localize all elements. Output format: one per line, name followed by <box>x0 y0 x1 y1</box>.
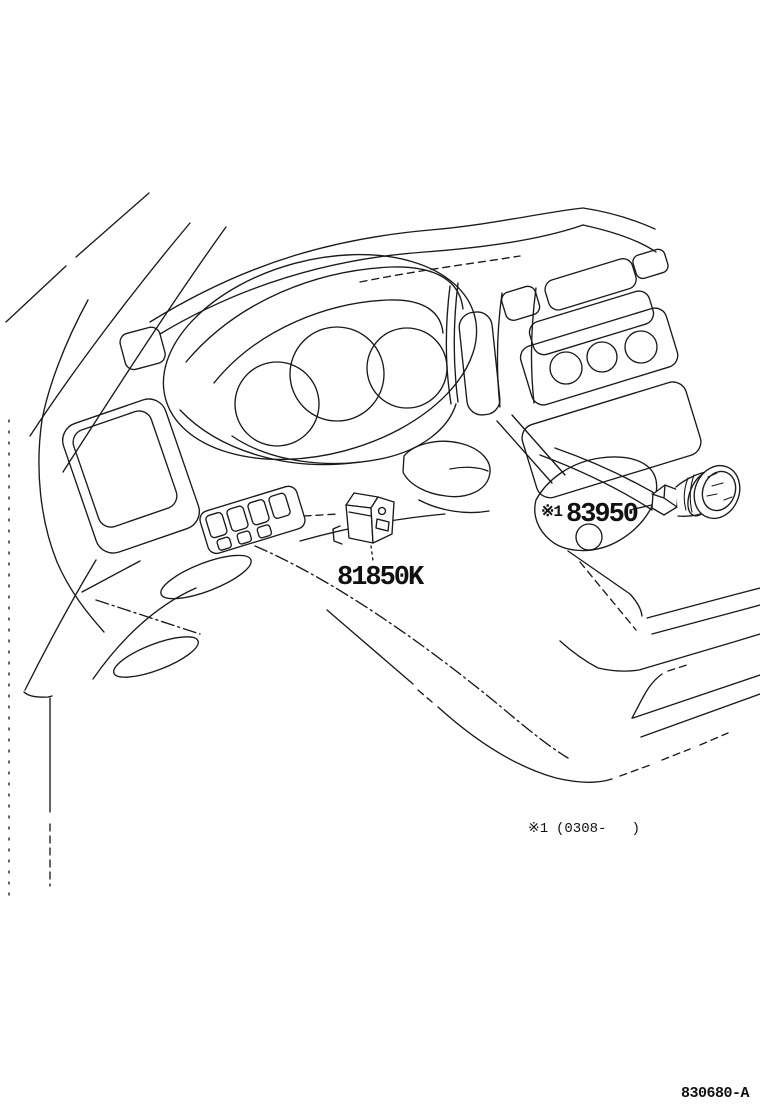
hvac-knob-left <box>550 352 582 384</box>
parts-diagram-page: ※1 83950 81850K ※1 (0308- ) 830680-A <box>0 0 760 1112</box>
steering-column <box>403 415 565 513</box>
figure-code: 830680-A <box>681 1085 750 1102</box>
instrument-panel-diagram: ※1 83950 81850K ※1 (0308- ) 830680-A <box>0 0 760 1112</box>
part-81850k-drawing <box>304 493 394 561</box>
leader-line-81850k <box>304 514 338 516</box>
window-switch-panel <box>198 484 307 556</box>
a-pillar-lines <box>6 193 226 632</box>
cluster-visor <box>186 267 463 463</box>
dash-lower-edge <box>255 448 666 758</box>
footnote-range: (0308- ) <box>556 821 640 837</box>
center-stack <box>500 248 705 502</box>
callout-81850k-number[interactable]: 81850K <box>337 563 425 593</box>
hvac-knob-right <box>625 331 657 363</box>
labels: ※1 83950 81850K ※1 (0308- ) 830680-A <box>337 500 750 1102</box>
callout-83950-number[interactable]: 83950 <box>566 500 638 530</box>
hvac-knob-center <box>587 342 617 372</box>
footnote-marker: ※1 <box>528 821 548 837</box>
dashboard-line-art <box>6 193 760 900</box>
console-sweep <box>327 610 728 782</box>
callout-83950-marker: ※1 <box>541 503 562 521</box>
gauge-circles <box>235 327 447 446</box>
